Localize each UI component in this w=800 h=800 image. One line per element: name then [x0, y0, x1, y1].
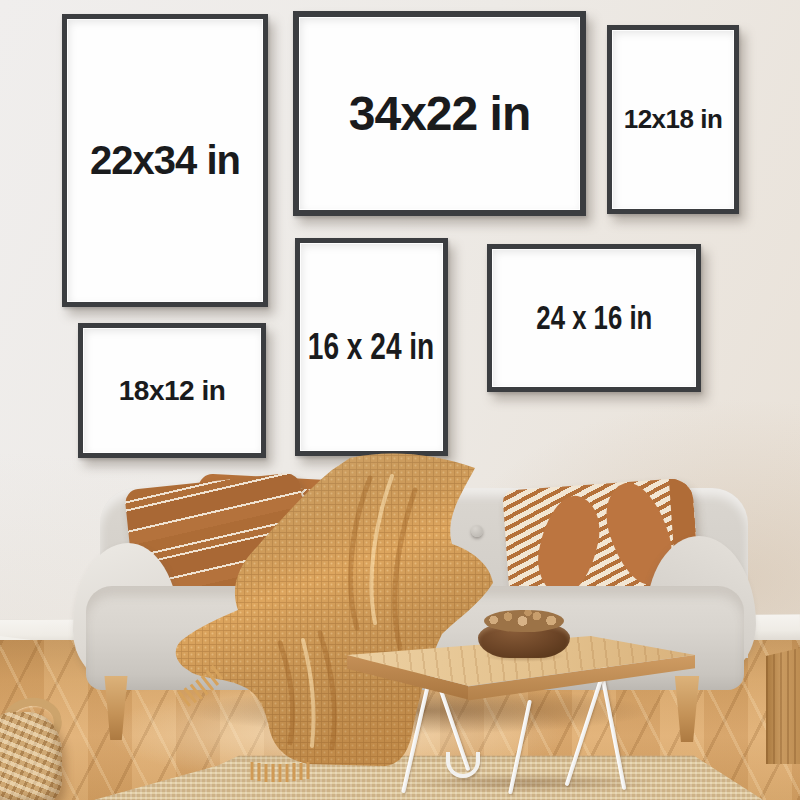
frame-size-label: 18x12 in: [119, 375, 226, 407]
frame-size-label: 16 x 24 in: [308, 326, 434, 368]
pillow-leaf-motif: [532, 491, 606, 600]
table-shadow: [360, 770, 700, 796]
wood-block-side-table: [766, 648, 800, 764]
woven-basket: [0, 712, 62, 800]
throw-blanket: [160, 448, 520, 783]
frame-18x12: 18x12 in: [78, 323, 266, 458]
frame-16x24: 16 x 24 in: [295, 238, 448, 456]
frame-size-label: 12x18 in: [624, 104, 723, 135]
frame-34x22: 34x22 in: [293, 11, 586, 216]
frame-24x16: 24 x 16 in: [487, 244, 701, 392]
blanket-fringe: [252, 762, 308, 782]
living-room-scene: 22x34 in 34x22 in 12x18 in 16 x 24 in 24…: [0, 0, 800, 800]
frame-22x34: 22x34 in: [62, 14, 268, 307]
frame-size-label: 24 x 16 in: [536, 299, 652, 337]
frame-12x18: 12x18 in: [607, 25, 739, 214]
nuts-in-bowl: [484, 610, 564, 632]
frame-size-label: 34x22 in: [349, 86, 530, 141]
frame-size-label: 22x34 in: [90, 138, 240, 183]
